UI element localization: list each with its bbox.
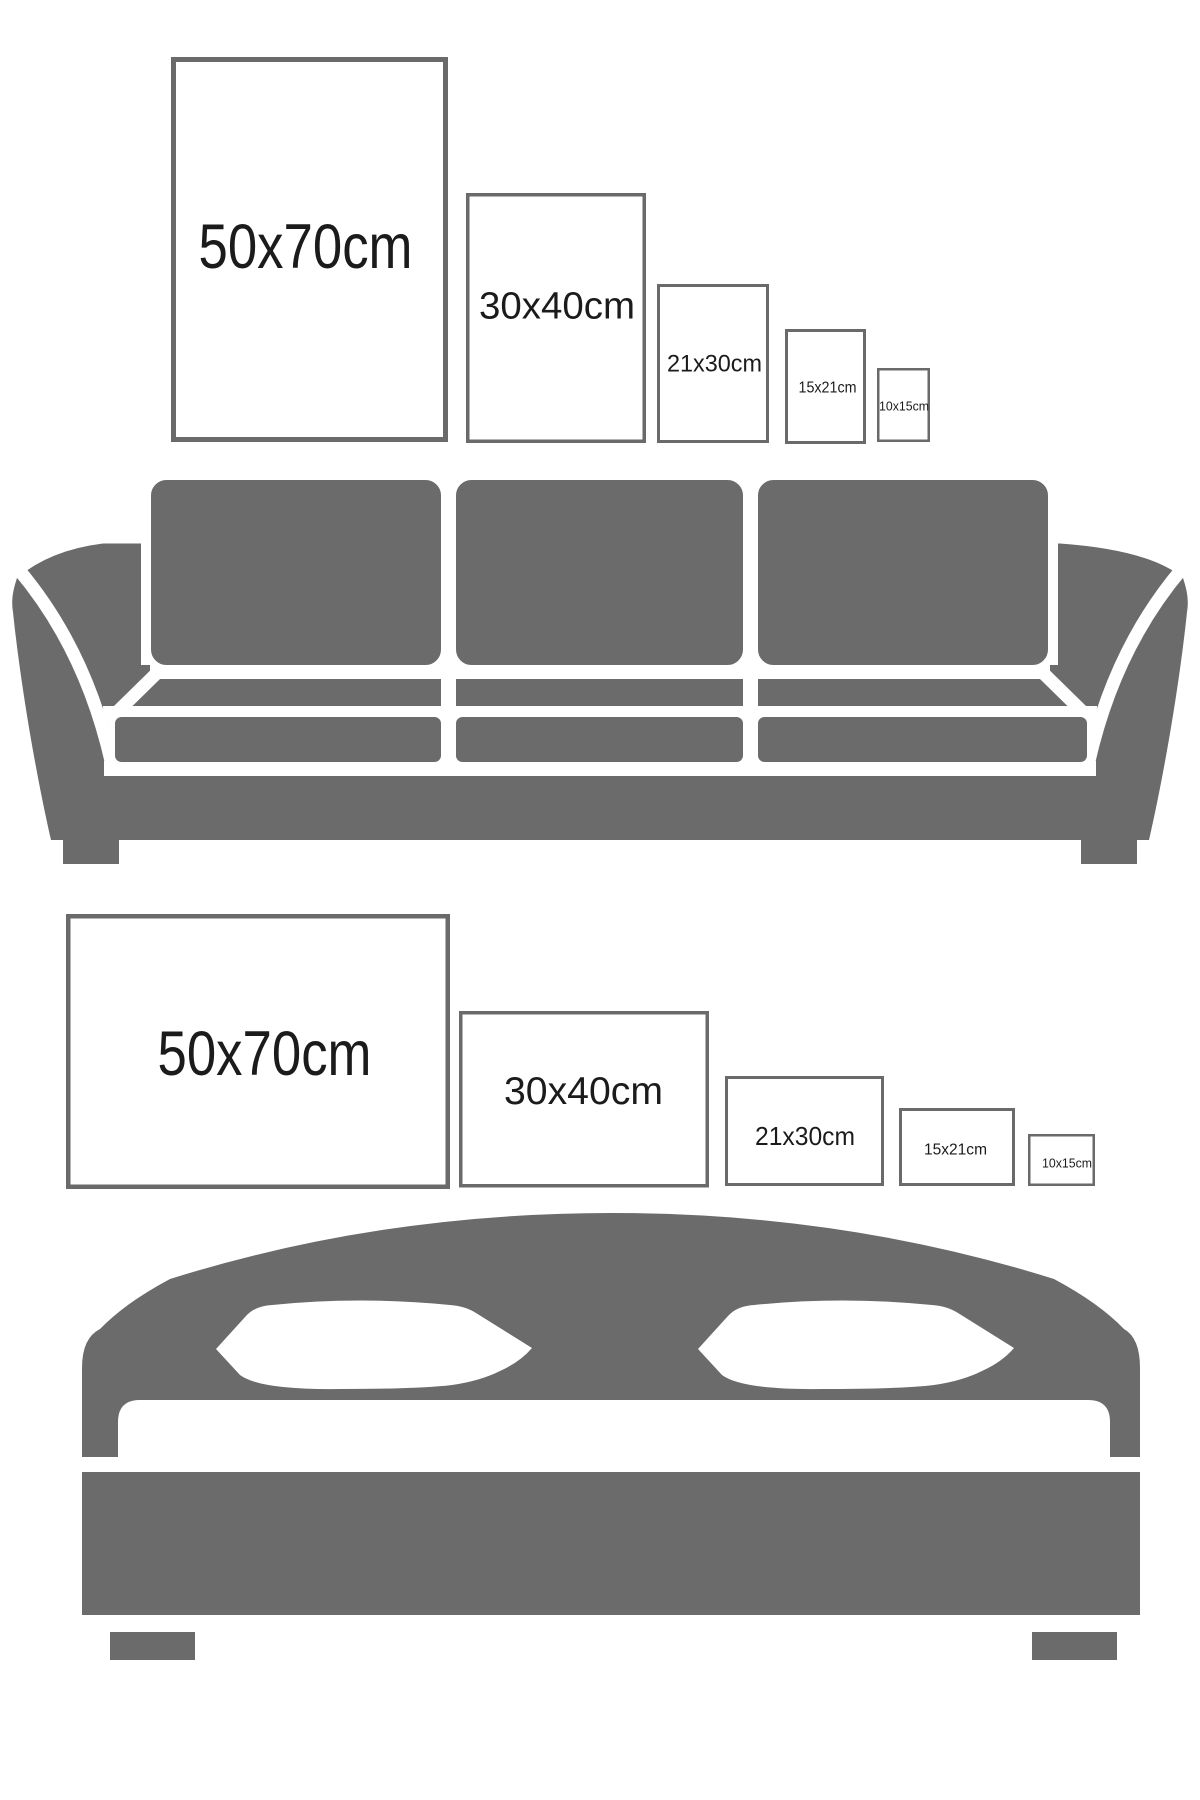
svg-text:10x15cm: 10x15cm [879, 400, 929, 414]
svg-text:10x15cm: 10x15cm [1042, 1156, 1092, 1171]
svg-text:15x21cm: 15x21cm [924, 1142, 987, 1159]
svg-text:30x40cm: 30x40cm [504, 1070, 663, 1113]
svg-text:50x70cm: 50x70cm [158, 1019, 372, 1089]
svg-text:21x30cm: 21x30cm [667, 351, 762, 378]
svg-text:50x70cm: 50x70cm [199, 212, 413, 282]
svg-text:21x30cm: 21x30cm [755, 1121, 855, 1151]
svg-text:15x21cm: 15x21cm [799, 380, 857, 397]
svg-text:30x40cm: 30x40cm [479, 286, 635, 328]
